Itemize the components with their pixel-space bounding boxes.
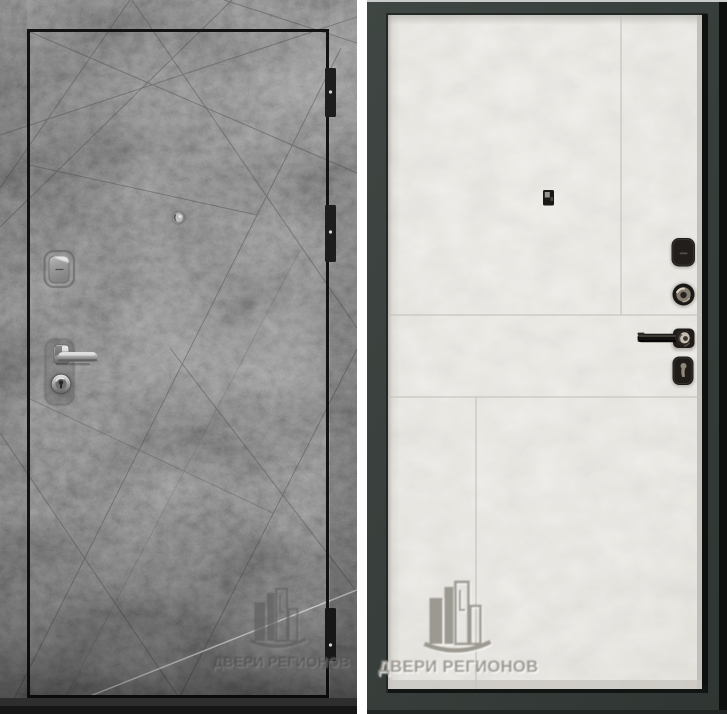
svg-text:ДВЕРИ РЕГИОНОВ: ДВЕРИ РЕГИОНОВ: [213, 655, 350, 671]
svg-text:ДВЕРИ РЕГИОНОВ: ДВЕРИ РЕГИОНОВ: [378, 658, 538, 676]
